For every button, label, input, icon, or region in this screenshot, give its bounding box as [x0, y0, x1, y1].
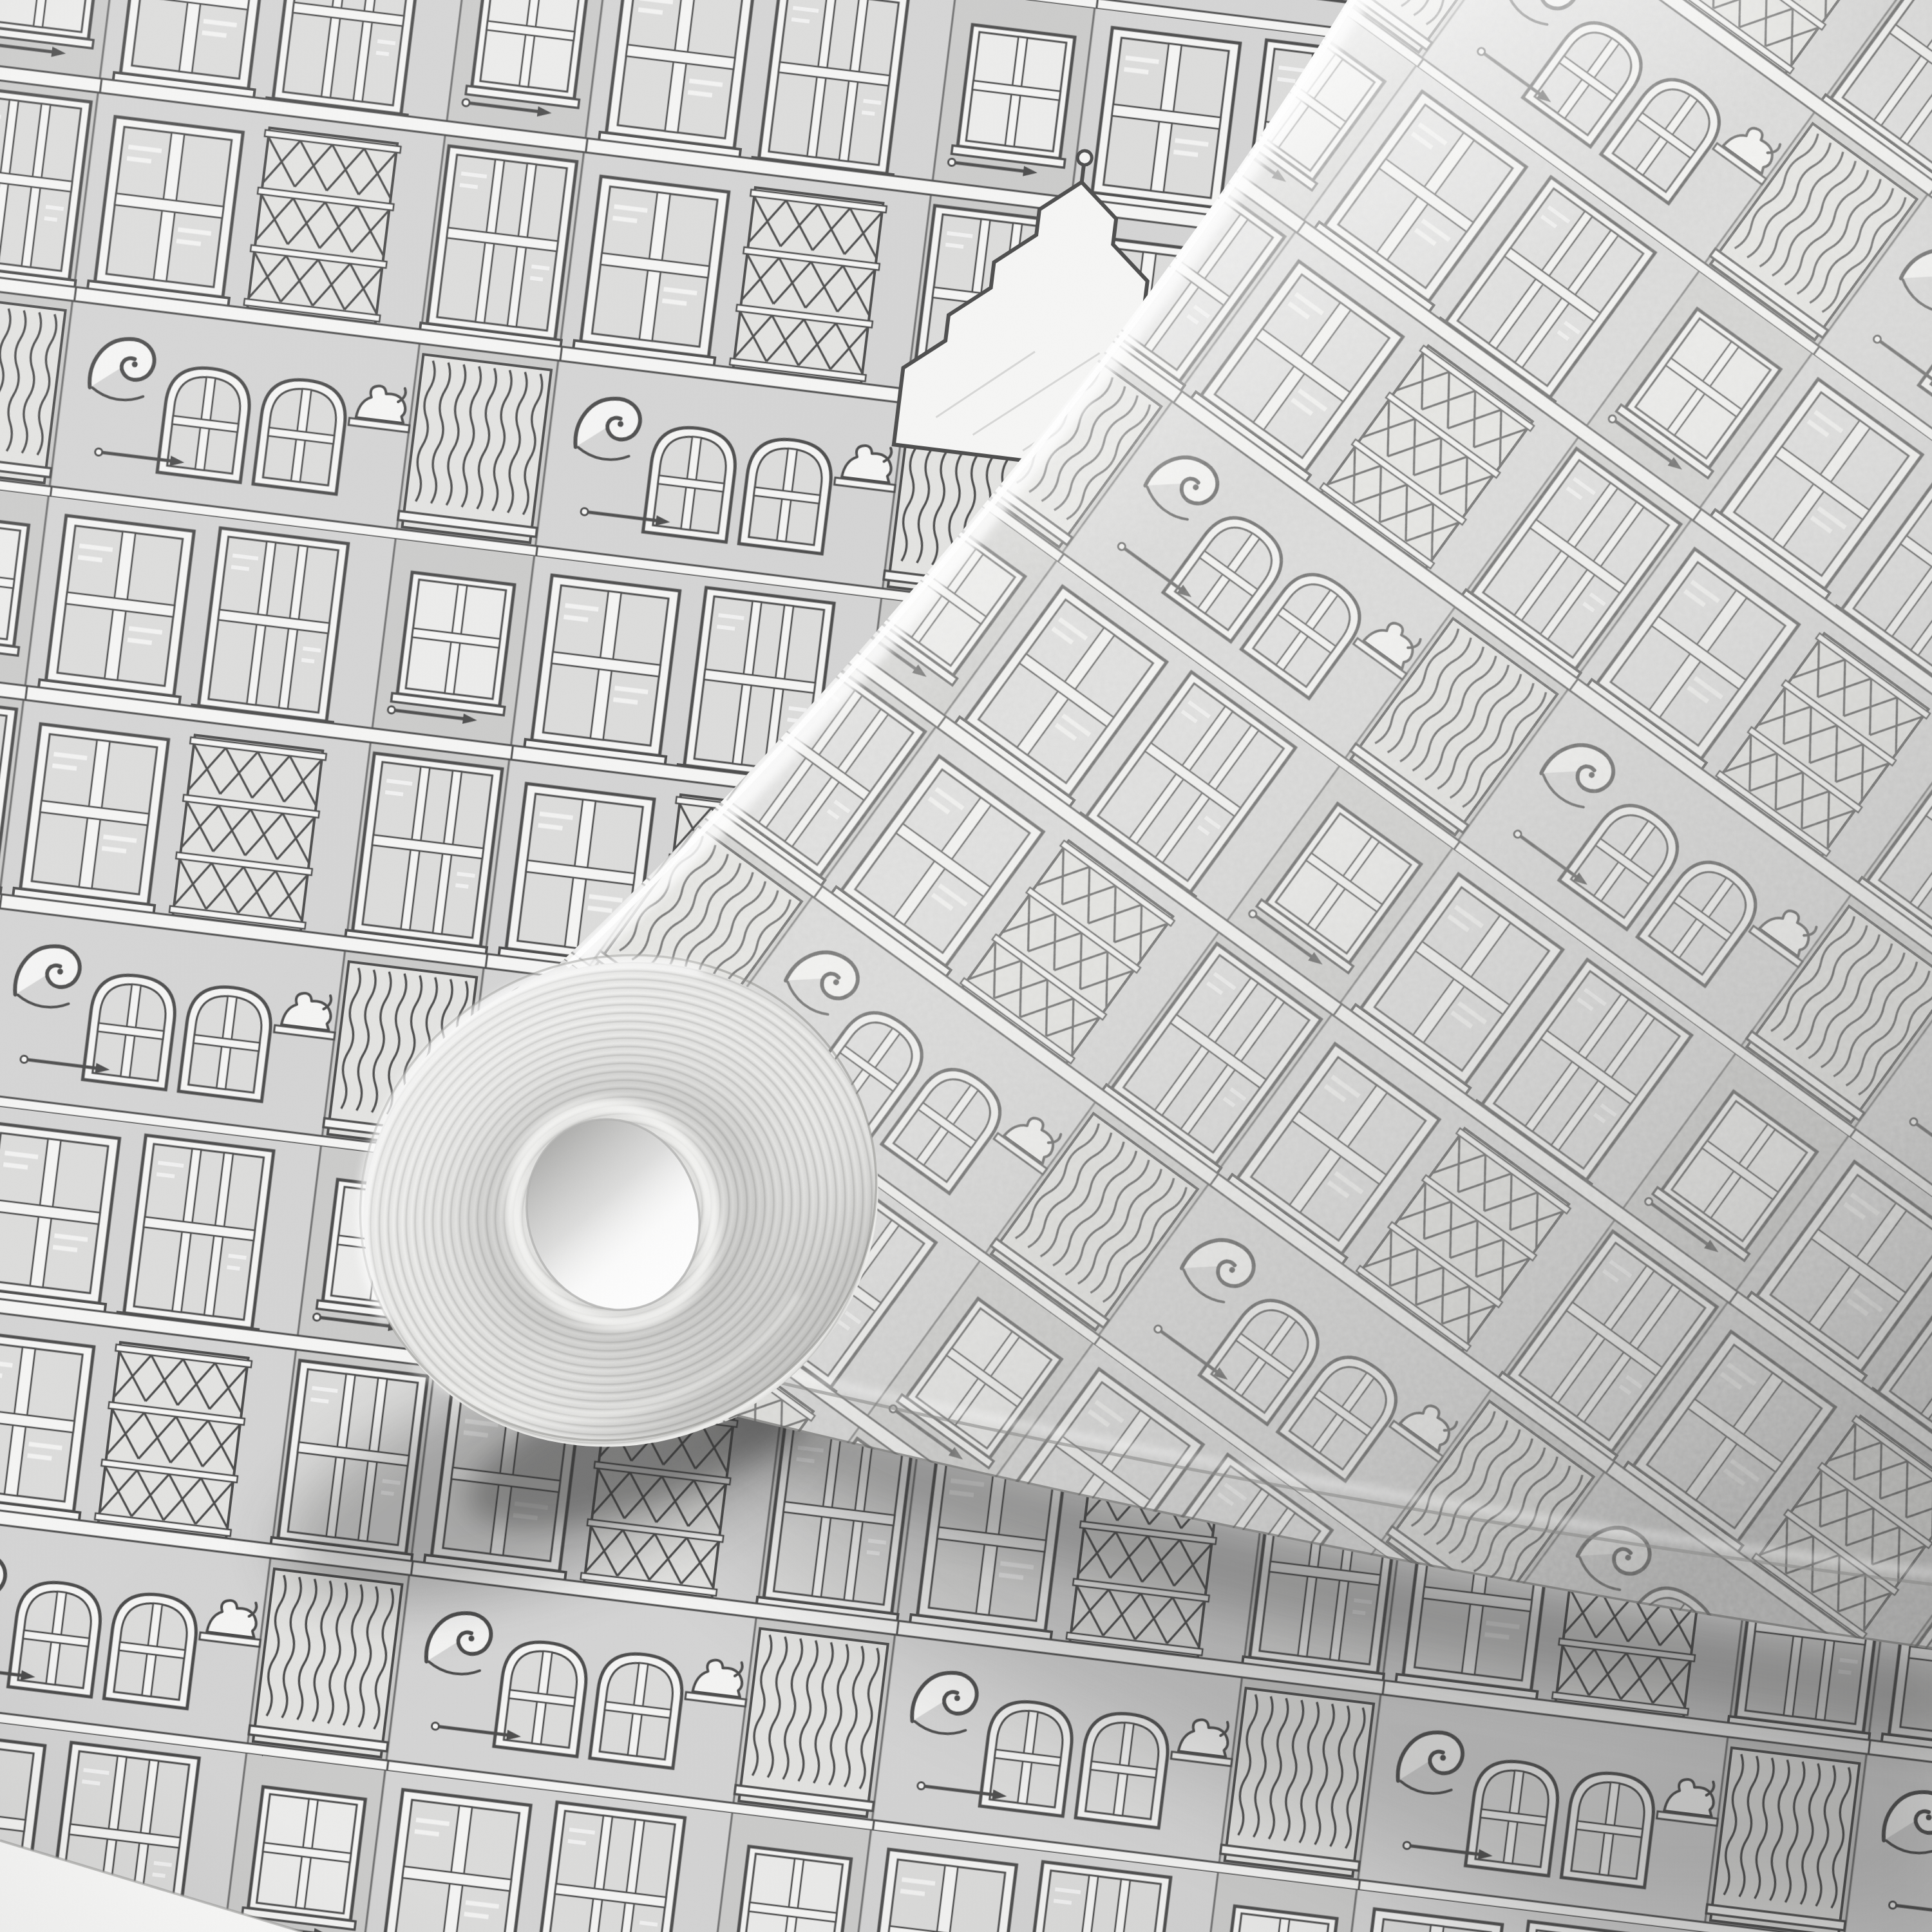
scene-canvas — [0, 0, 1932, 1932]
wallpaper-roll-product-photo — [0, 0, 1932, 1932]
vignette — [0, 0, 1932, 1932]
